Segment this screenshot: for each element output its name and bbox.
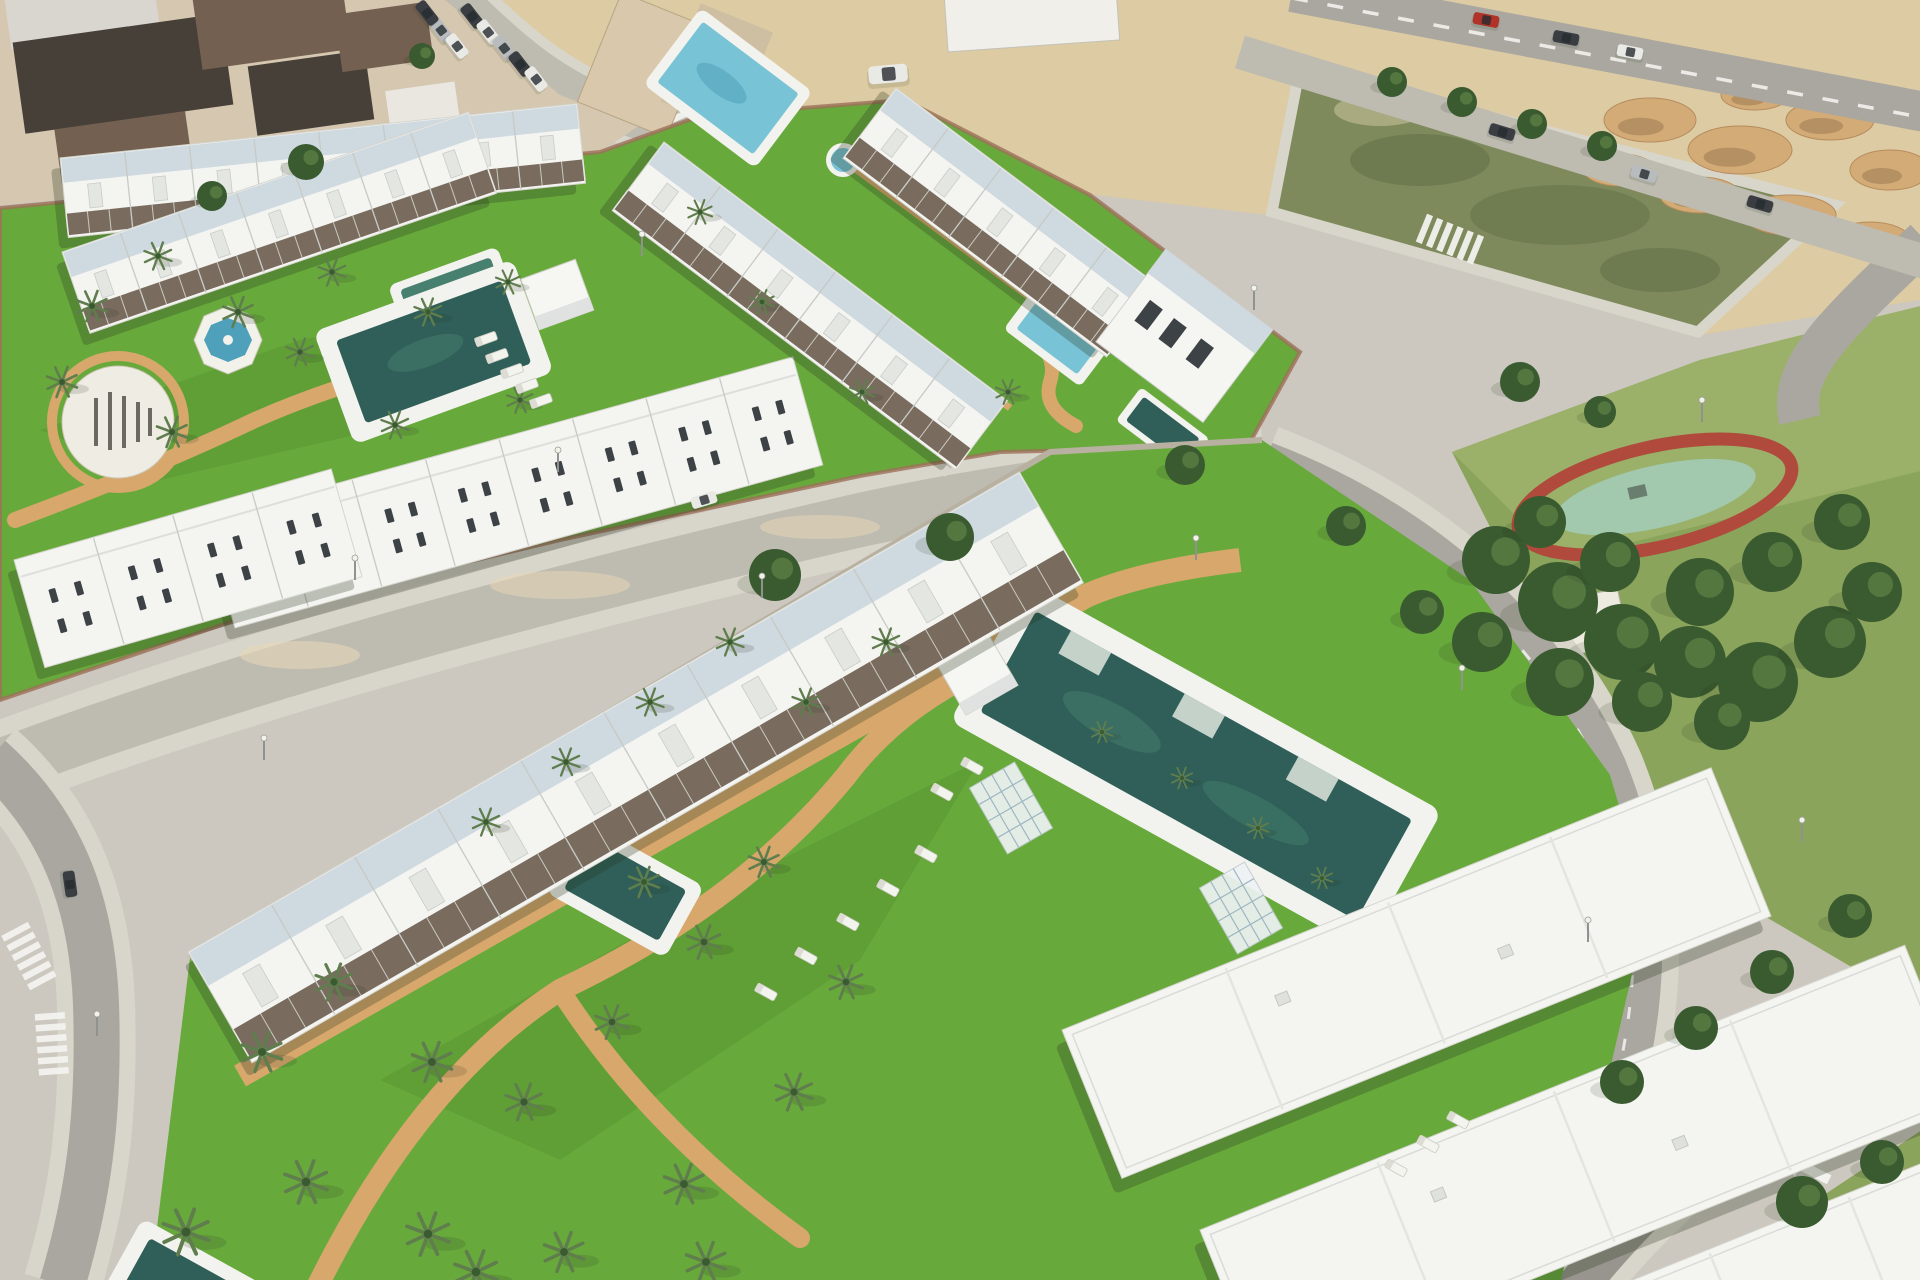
construction-sand-patch: [490, 571, 630, 599]
scene-svg: [0, 0, 1920, 1280]
sand-mound: [1850, 150, 1920, 190]
sand-mound: [1688, 126, 1792, 174]
aerial-architectural-render: [0, 0, 1920, 1280]
sand-mound: [1604, 98, 1696, 142]
ground-logo-plaza: [62, 366, 174, 478]
scrub-mottle: [1470, 185, 1650, 245]
construction-sand-patch: [760, 515, 880, 539]
car: [866, 63, 910, 89]
scrub-mottle: [1350, 134, 1490, 186]
construction-sand-patch: [240, 641, 360, 669]
scrub-mottle: [1600, 248, 1720, 292]
